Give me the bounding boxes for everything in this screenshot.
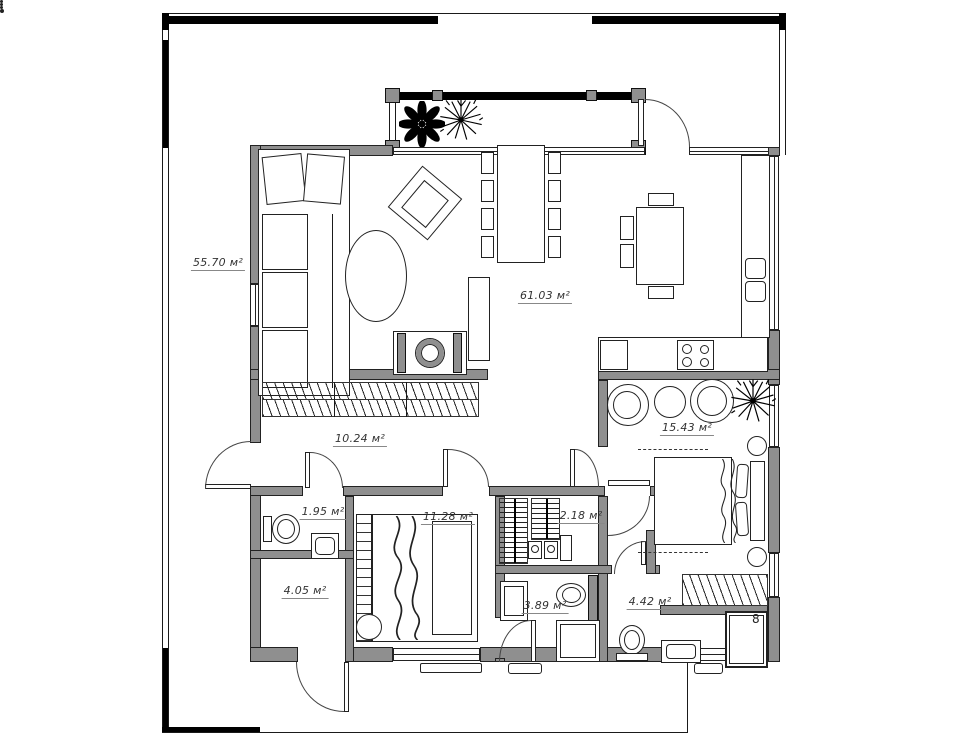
window-east-bedroom2 [769, 553, 779, 597]
door-entrance-swing [296, 662, 344, 712]
vanity-basin [666, 644, 696, 659]
wall-hall-south [343, 486, 443, 496]
hall-wardrobe-divider [334, 382, 335, 417]
closet-appliance-door [547, 545, 555, 553]
door-terrace-west-swing [205, 441, 251, 489]
area-label-bathroom: 3.89 м² [522, 599, 569, 614]
kitchen-sink-basin [745, 258, 766, 279]
area-label-bedroom-master: 15.43 м² [660, 421, 714, 436]
dining-chair [548, 152, 561, 174]
stove-burner [700, 345, 709, 354]
railing-corner-tick-right [779, 13, 786, 30]
toilet-bowl-inner [624, 630, 640, 650]
sofa-seat-edge [332, 214, 333, 388]
glazed-wall-north [689, 147, 780, 155]
window-east-kitchen [769, 156, 779, 330]
doormat [508, 663, 542, 674]
hall-wardrobe-divider [406, 382, 407, 417]
porch-edge-right [687, 662, 688, 733]
closet-rail [499, 498, 528, 564]
window-south [393, 648, 480, 661]
kitchen-chair [620, 216, 634, 240]
fireplace-post [453, 333, 462, 373]
door-bathroom-swing [499, 620, 531, 662]
door-bathroom-leaf [531, 620, 536, 662]
hall-wardrobe [262, 382, 479, 400]
hall-wardrobe [262, 399, 479, 417]
door-wc-swing [310, 452, 343, 488]
closet-rail [531, 498, 560, 540]
wc-sink-basin [315, 537, 335, 555]
closet-shelf [560, 535, 572, 561]
pergola-beam [392, 92, 640, 100]
sofa-cushion [262, 214, 308, 270]
dining-chair [548, 180, 561, 202]
terrace-boundary-right-inner [779, 13, 780, 155]
kitchen-table [636, 207, 684, 285]
toilet-tank [616, 653, 648, 661]
rug-oval [345, 230, 407, 322]
dining-chair [481, 180, 494, 202]
door-entrance-leaf [344, 662, 349, 712]
tall-cabinet [468, 277, 490, 361]
kitchen-cabinet [600, 340, 628, 370]
fireplace-flue [416, 339, 444, 367]
floor-plan-canvas: 8 55.70 м² 61.03 м² 10.24 м² 1.95 м² 11.… [0, 0, 953, 753]
area-label-closet: 2.18 м² [558, 509, 605, 524]
master-wardrobe [682, 574, 768, 606]
bed-master-headboard [750, 461, 765, 541]
area-label-living: 61.03 м² [518, 289, 572, 304]
bed-small-duvet [432, 521, 472, 635]
bed-pillow [735, 502, 749, 537]
toilet-bowl-inner [277, 519, 295, 539]
wall-bedroom-master-west [598, 380, 608, 447]
closet-appliance-door [531, 545, 539, 553]
wall-east [768, 597, 780, 662]
dining-chair [481, 236, 494, 258]
wall-hall-south [250, 486, 303, 496]
wall-south [348, 647, 393, 662]
dining-chair [481, 208, 494, 230]
armchair-round-seat [613, 391, 641, 419]
terrace-door-leaf [638, 99, 644, 146]
bedroom-stool [356, 614, 382, 640]
sofa-cushion [262, 272, 308, 328]
sofa-pillow [262, 153, 307, 205]
wall-closet-bath [495, 565, 612, 574]
area-label-hallway: 10.24 м² [333, 432, 387, 447]
pergola-column [385, 88, 400, 103]
window-sill-bench [420, 663, 482, 673]
bed-pillow [735, 464, 749, 499]
railing-bottom-left-v [163, 648, 168, 727]
pergola-side-left [389, 103, 390, 141]
railing-corner-tick-left [162, 13, 169, 30]
door-bedroom-small-swing [448, 449, 489, 487]
terrace-boundary-left-inner [168, 13, 169, 733]
shower-drain [0, 9, 4, 13]
terrace-door-swing [645, 99, 690, 147]
wall-hall-south [489, 486, 605, 496]
pergola-post [586, 90, 597, 101]
terrace-boundary-right-outer [785, 13, 786, 155]
shower-tray-inner [560, 624, 596, 658]
wall-east [768, 447, 780, 553]
stove-burner [682, 357, 692, 367]
dining-chair [548, 236, 561, 258]
porch-edge-bottom [162, 732, 688, 733]
plumbing-ledge [588, 575, 598, 623]
kitchen-counter-east [741, 155, 770, 338]
wall-wc-east [345, 496, 354, 662]
nightstand-round [747, 436, 767, 456]
wall-west [250, 489, 261, 662]
dining-table [497, 145, 545, 263]
area-label-storage: 4.05 м² [282, 584, 329, 599]
railing-top-right [592, 16, 782, 24]
fireplace-post [397, 333, 406, 373]
area-label-shower-room: 4.42 м² [627, 595, 674, 610]
bed-small-blanket [386, 516, 428, 640]
wall-south [250, 647, 298, 662]
door-bedroom-master-swing [575, 449, 599, 487]
stove-burner [700, 358, 709, 367]
sofa-cushion [262, 330, 308, 388]
kitchen-sink-basin [745, 281, 766, 302]
toilet-tank [263, 516, 272, 542]
nightstand-round [747, 547, 767, 567]
area-label-bedroom-small: 11.28 м² [421, 510, 475, 525]
pergola-side-left2 [395, 103, 396, 141]
dining-chair [481, 152, 494, 174]
stove-burner [682, 344, 692, 354]
side-table-round [654, 386, 686, 418]
shower-head-symbol: 8 [752, 612, 760, 626]
kitchen-chair [648, 286, 674, 299]
armchair-round-seat [697, 386, 727, 416]
area-label-terrace: 55.70 м² [191, 256, 245, 271]
plant-spiky-icon [729, 377, 777, 425]
kitchen-chair [648, 193, 674, 206]
terrace-boundary-top [162, 13, 786, 14]
sofa-pillow [303, 153, 345, 204]
doormat [694, 663, 723, 674]
railing-left [163, 40, 168, 148]
area-label-wc: 1.95 м² [300, 505, 347, 520]
plant-spiky-icon [437, 97, 485, 143]
dining-chair [548, 208, 561, 230]
railing-top-left [168, 16, 438, 24]
kitchen-chair [620, 244, 634, 268]
